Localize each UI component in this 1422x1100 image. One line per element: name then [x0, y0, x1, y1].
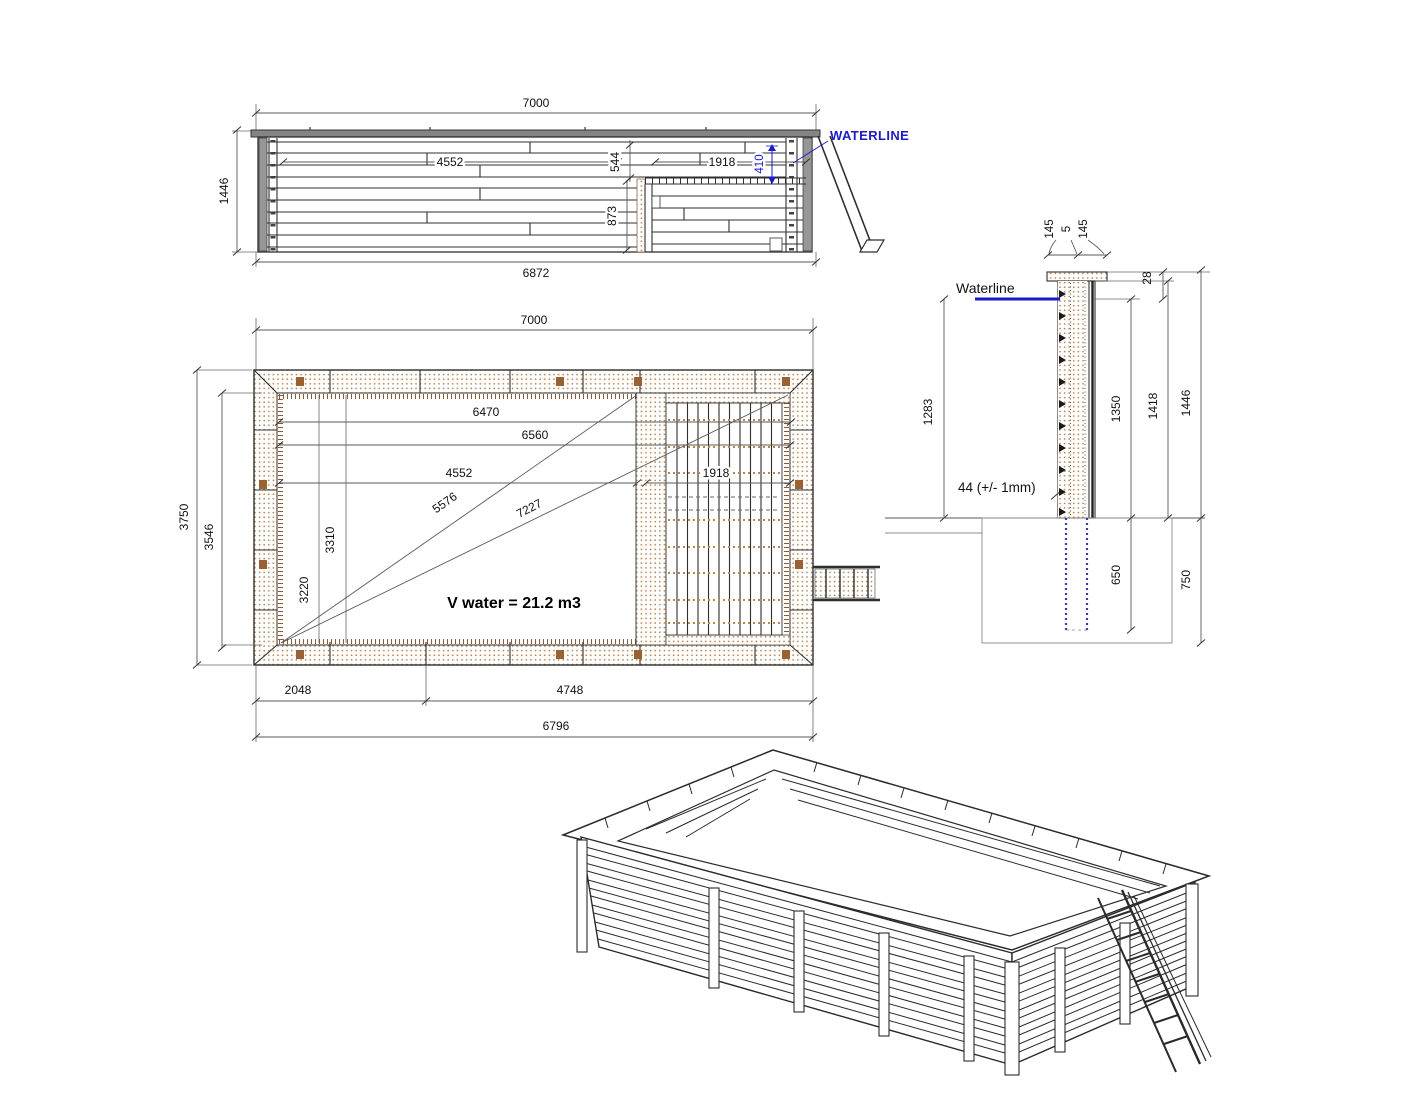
elevation-dim-544: 544 [608, 152, 622, 172]
section-wall [1047, 272, 1107, 518]
section-dim-650: 650 [1109, 565, 1123, 585]
section-dim-5: 5 [1061, 226, 1073, 232]
section-dim-750: 750 [1179, 570, 1193, 590]
side-elevation-view: 7000 1446 [217, 96, 909, 280]
elevation-dim-4552: 4552 [437, 155, 464, 169]
plan-dim-3546-group: 3546 [202, 390, 262, 652]
pool-technical-drawing: 7000 1446 [0, 0, 1422, 1100]
section-dim-650-group: 650 [1109, 518, 1135, 634]
section-dim-145-left: 145 [1044, 219, 1056, 238]
plan-volume-label: V water = 21.2 m3 [447, 595, 581, 612]
elevation-dim-1918: 1918 [709, 155, 736, 169]
plan-dim-bottom-group: 2048 4748 6796 [252, 665, 817, 742]
elevation-dim-7000: 7000 [523, 96, 550, 110]
elevation-dim-1446-group: 1446 [217, 127, 258, 256]
elevation-top-cap [251, 130, 820, 137]
section-footing [982, 518, 1172, 643]
plan-dim-2048: 2048 [285, 683, 312, 697]
section-dim-1446-group: 1446 [1179, 267, 1205, 522]
section-dim-1446: 1446 [1179, 389, 1193, 416]
plan-dim-3750: 3750 [177, 503, 191, 530]
section-waterline-group: Waterline [956, 280, 1060, 299]
plan-dim-4748: 4748 [557, 683, 584, 697]
plan-view: 7000 [177, 313, 880, 742]
elevation-left-post [259, 138, 267, 251]
section-dim-1418: 1418 [1146, 392, 1160, 419]
plan-dim-4552-group: 4552 [275, 466, 641, 487]
section-dim-1418-group: 1418 [1146, 278, 1172, 522]
plan-dim-3220-group: 3220 [297, 395, 319, 643]
plan-dim-1918: 1918 [703, 466, 730, 480]
plan-dim-5576: 5576 [430, 489, 460, 516]
section-dim-28: 28 [1140, 271, 1154, 285]
plan-deck [636, 393, 790, 645]
plan-dim-4552: 4552 [446, 466, 473, 480]
elevation-dim-410: 410 [754, 154, 766, 173]
elevation-dim-6872: 6872 [523, 266, 550, 280]
section-cap-dims: 145 5 145 [1044, 219, 1111, 258]
plan-dim-6560: 6560 [522, 428, 549, 442]
drawing-svg: 7000 1446 [0, 0, 1422, 1100]
plan-dim-6470: 6470 [473, 405, 500, 419]
section-dim-28-group: 28 [1140, 269, 1167, 303]
elevation-right-post [803, 138, 812, 251]
section-dim-1283: 1283 [921, 398, 935, 425]
section-ground [885, 518, 1205, 643]
elevation-pool-body [251, 127, 820, 252]
plan-dim-3546: 3546 [202, 523, 216, 550]
section-dim-145-right: 145 [1078, 219, 1090, 238]
elevation-dim-7000-group: 7000 [252, 96, 820, 130]
elevation-dim-1446: 1446 [217, 177, 231, 204]
section-waterline-label: Waterline [956, 280, 1015, 296]
elevation-dim-6872-group: 6872 [252, 252, 820, 280]
section-dim-1350-group: 1350 [1109, 296, 1135, 522]
wall-section-view: 145 5 145 W [885, 219, 1210, 646]
plan-ladder [813, 567, 880, 600]
section-dim-1350: 1350 [1109, 395, 1123, 422]
plan-dim-6796: 6796 [543, 719, 570, 733]
section-tolerance-group: 44 (+/- 1mm) [958, 480, 1059, 500]
elevation-dim-873: 873 [605, 206, 619, 226]
plan-dim-3310: 3310 [323, 526, 337, 553]
plan-dim-7227: 7227 [514, 496, 544, 521]
elevation-waterline-label: WATERLINE [830, 128, 909, 143]
plan-dim-3220: 3220 [297, 576, 311, 603]
plan-dim-7000: 7000 [521, 313, 548, 327]
section-dim-750-group: 750 [1179, 518, 1205, 647]
elevation-ladder [818, 136, 884, 252]
section-dim-1283-group: 1283 [921, 296, 948, 522]
plan-dim-3750-group: 3750 [177, 367, 252, 669]
section-right-dims: 28 1350 1418 1446 650 [1095, 267, 1210, 647]
section-tolerance-label: 44 (+/- 1mm) [958, 480, 1036, 495]
isometric-view [563, 750, 1211, 1075]
plan-dim-7000-group: 7000 [252, 313, 817, 370]
